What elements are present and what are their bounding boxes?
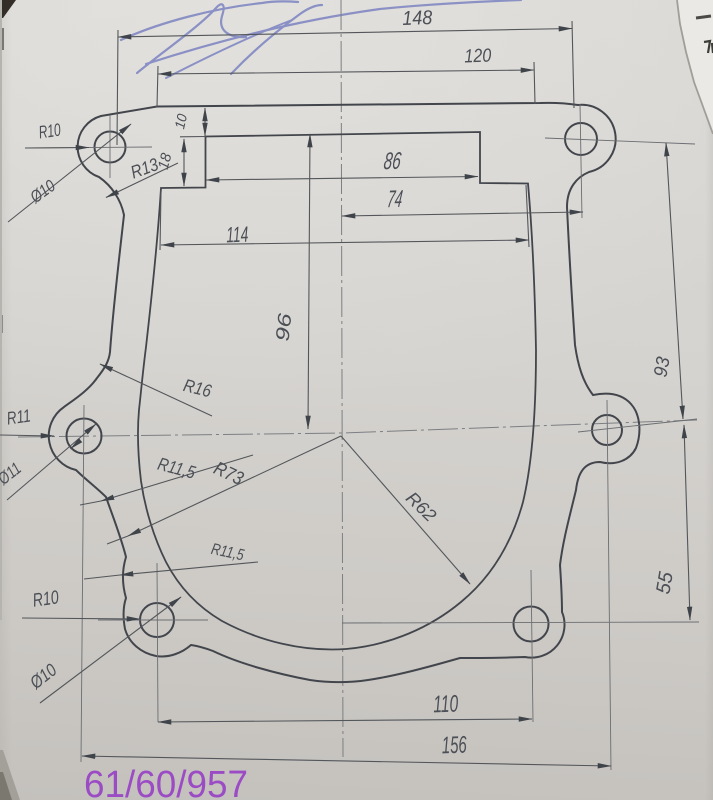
svg-text:Ø10: Ø10	[26, 176, 59, 207]
svg-text:R10: R10	[37, 120, 62, 143]
svg-text:R73: R73	[210, 458, 246, 490]
svg-text:55: 55	[652, 569, 678, 595]
svg-text:R62: R62	[402, 488, 440, 526]
svg-text:61/60/957: 61/60/957	[84, 764, 248, 800]
svg-text:10: 10	[171, 112, 190, 130]
svg-text:R11,5: R11,5	[210, 541, 246, 565]
svg-text:Ø10: Ø10	[25, 660, 60, 694]
svg-text:156: 156	[441, 732, 467, 760]
svg-text:148: 148	[402, 7, 433, 30]
svg-text:Ø11: Ø11	[0, 459, 25, 489]
svg-text:R16: R16	[181, 375, 214, 401]
svg-text:R13: R13	[128, 154, 161, 182]
svg-text:96: 96	[273, 312, 297, 343]
svg-text:R11,5: R11,5	[156, 454, 199, 483]
svg-text:74: 74	[386, 186, 404, 213]
svg-text:R11: R11	[5, 405, 32, 428]
svg-text:120: 120	[464, 46, 492, 68]
svg-text:R10: R10	[31, 587, 60, 611]
svg-text:110: 110	[433, 691, 459, 719]
svg-text:86: 86	[382, 148, 403, 176]
svg-text:93: 93	[651, 355, 675, 379]
svg-text:114: 114	[226, 222, 249, 248]
